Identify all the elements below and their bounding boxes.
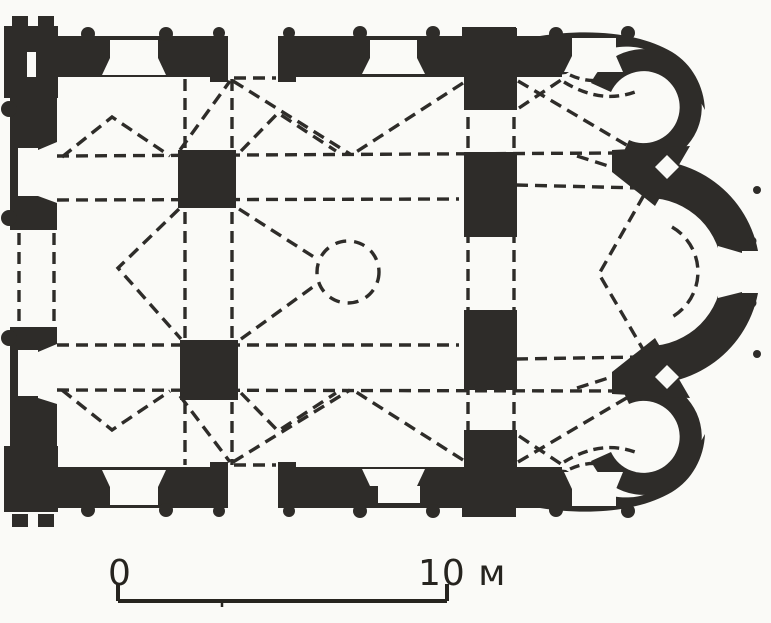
dashed-line: [241, 113, 336, 151]
dashed-line: [241, 393, 336, 431]
corner-notch: [27, 52, 36, 77]
floor-plan-drawing: 0 10 м: [0, 0, 771, 623]
dashed-line: [118, 209, 181, 339]
dashed-line: [518, 81, 635, 150]
dashed-line: [62, 117, 170, 157]
dashed-line: [62, 390, 170, 430]
dashed-line: [57, 390, 616, 391]
dashed-line: [353, 390, 463, 460]
south-window: [564, 472, 623, 506]
dashed-line: [180, 396, 230, 462]
dashed-line: [239, 209, 317, 259]
dome-circle: [317, 241, 379, 303]
dashed-line: [516, 185, 640, 188]
dashed-line: [518, 393, 635, 462]
sanctuary-cross-wall: [464, 28, 517, 508]
north-window: [102, 40, 166, 75]
west-wall: [1, 16, 58, 527]
dashed-line: [233, 390, 350, 462]
wall-openings: [18, 38, 766, 506]
west-window: [18, 344, 57, 404]
south-window: [102, 470, 166, 505]
vault-dashed-lines: [19, 73, 698, 471]
dashed-line: [516, 357, 640, 359]
dashed-line: [241, 284, 317, 339]
north-window: [564, 38, 623, 72]
scanned-floor-plan-page: 0 10 м: [0, 0, 771, 623]
north-window: [362, 40, 425, 74]
dashed-line: [57, 153, 616, 156]
west-window: [18, 142, 57, 203]
dashed-line: [672, 227, 698, 317]
dashed-line: [57, 199, 459, 200]
dashed-line: [233, 81, 350, 154]
dashed-line: [353, 83, 463, 154]
crossing-piers: [178, 150, 238, 400]
dashed-line: [180, 81, 230, 150]
apse-window: [718, 246, 766, 298]
scale-start-label: 0: [108, 553, 132, 594]
scale-end-label: 10 м: [418, 553, 506, 594]
dashed-line: [599, 195, 644, 351]
scale-bar: 0 10 м: [108, 553, 506, 607]
